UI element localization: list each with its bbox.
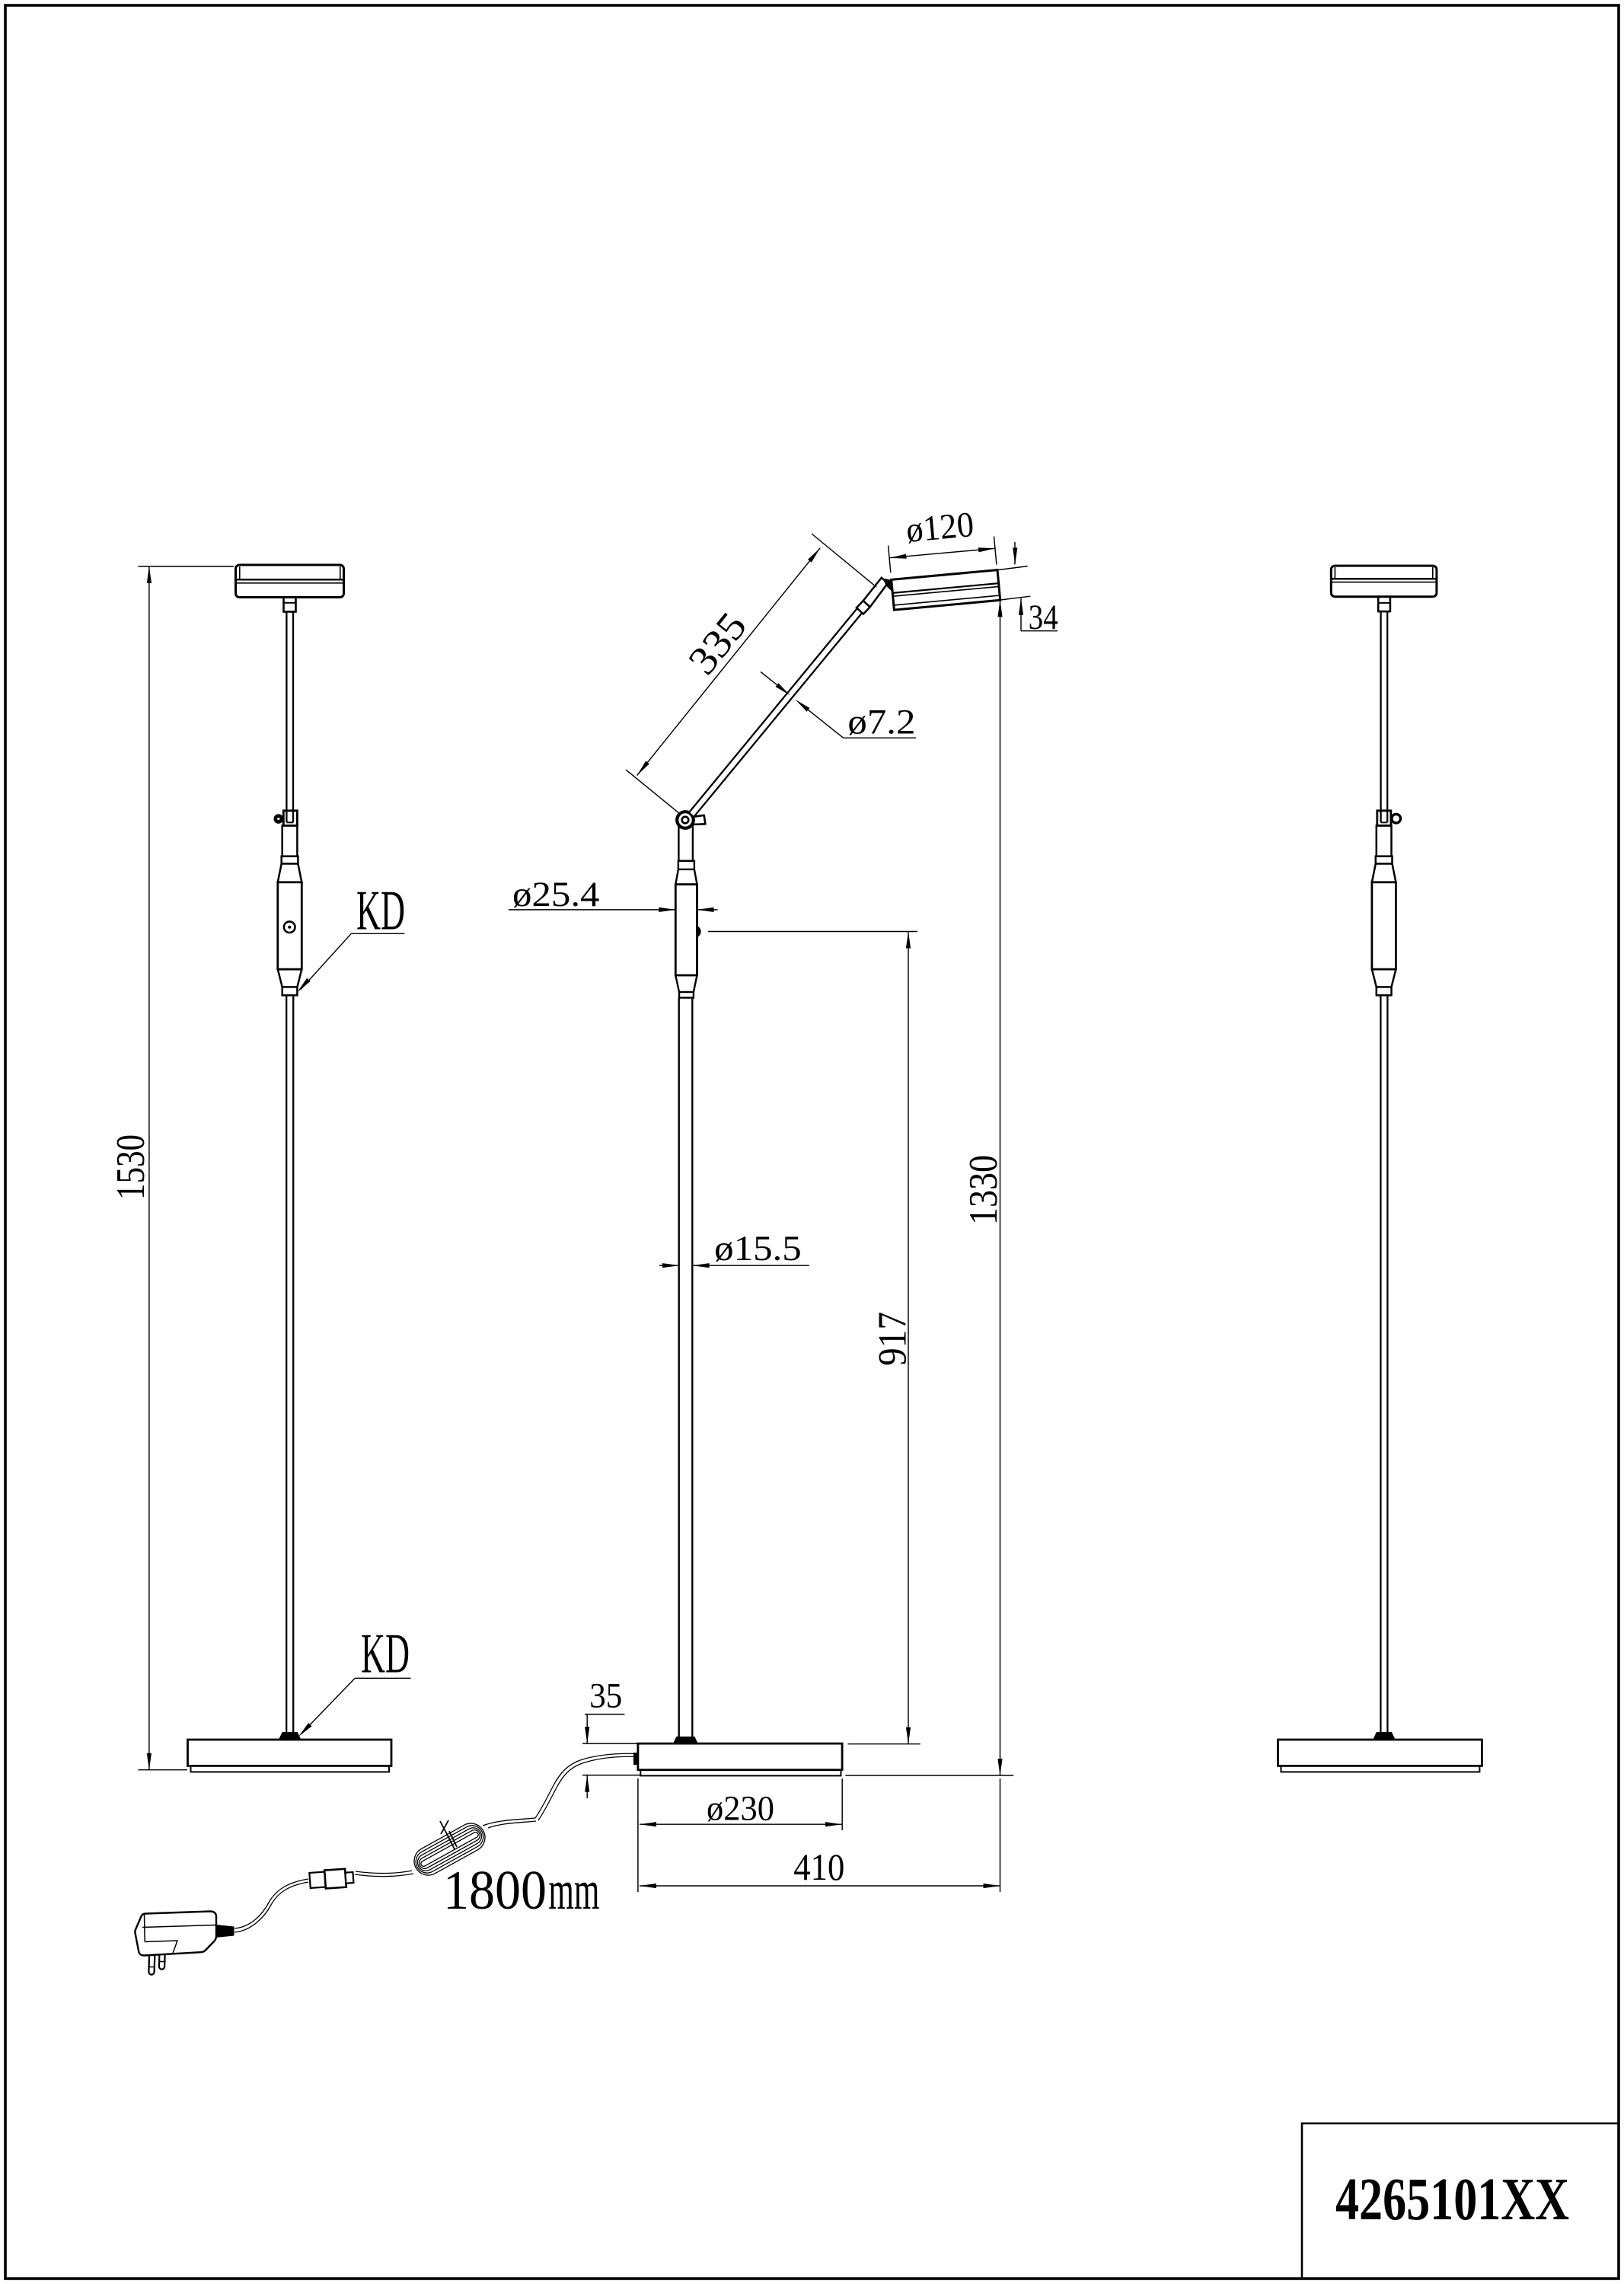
svg-text:KD: KD — [356, 880, 405, 943]
svg-text:ø7.2: ø7.2 — [847, 703, 915, 742]
svg-text:1530: 1530 — [109, 1134, 153, 1200]
svg-text:917: 917 — [871, 1312, 915, 1366]
svg-text:ø25.4: ø25.4 — [512, 875, 600, 914]
svg-text:34: 34 — [1029, 598, 1058, 637]
svg-text:1330: 1330 — [962, 1155, 1006, 1225]
svg-text:410: 410 — [793, 1845, 844, 1888]
svg-text:1800: 1800 — [443, 1859, 547, 1921]
svg-text:ø120: ø120 — [905, 505, 975, 550]
svg-text:35: 35 — [589, 1676, 622, 1715]
svg-text:4265101XX: 4265101XX — [1335, 2167, 1569, 2233]
svg-text:335: 335 — [680, 604, 755, 683]
svg-text:KD: KD — [361, 1622, 410, 1685]
svg-text:mm: mm — [548, 1859, 599, 1921]
svg-text:ø15.5: ø15.5 — [714, 1229, 802, 1268]
svg-text:ø230: ø230 — [707, 1789, 774, 1829]
